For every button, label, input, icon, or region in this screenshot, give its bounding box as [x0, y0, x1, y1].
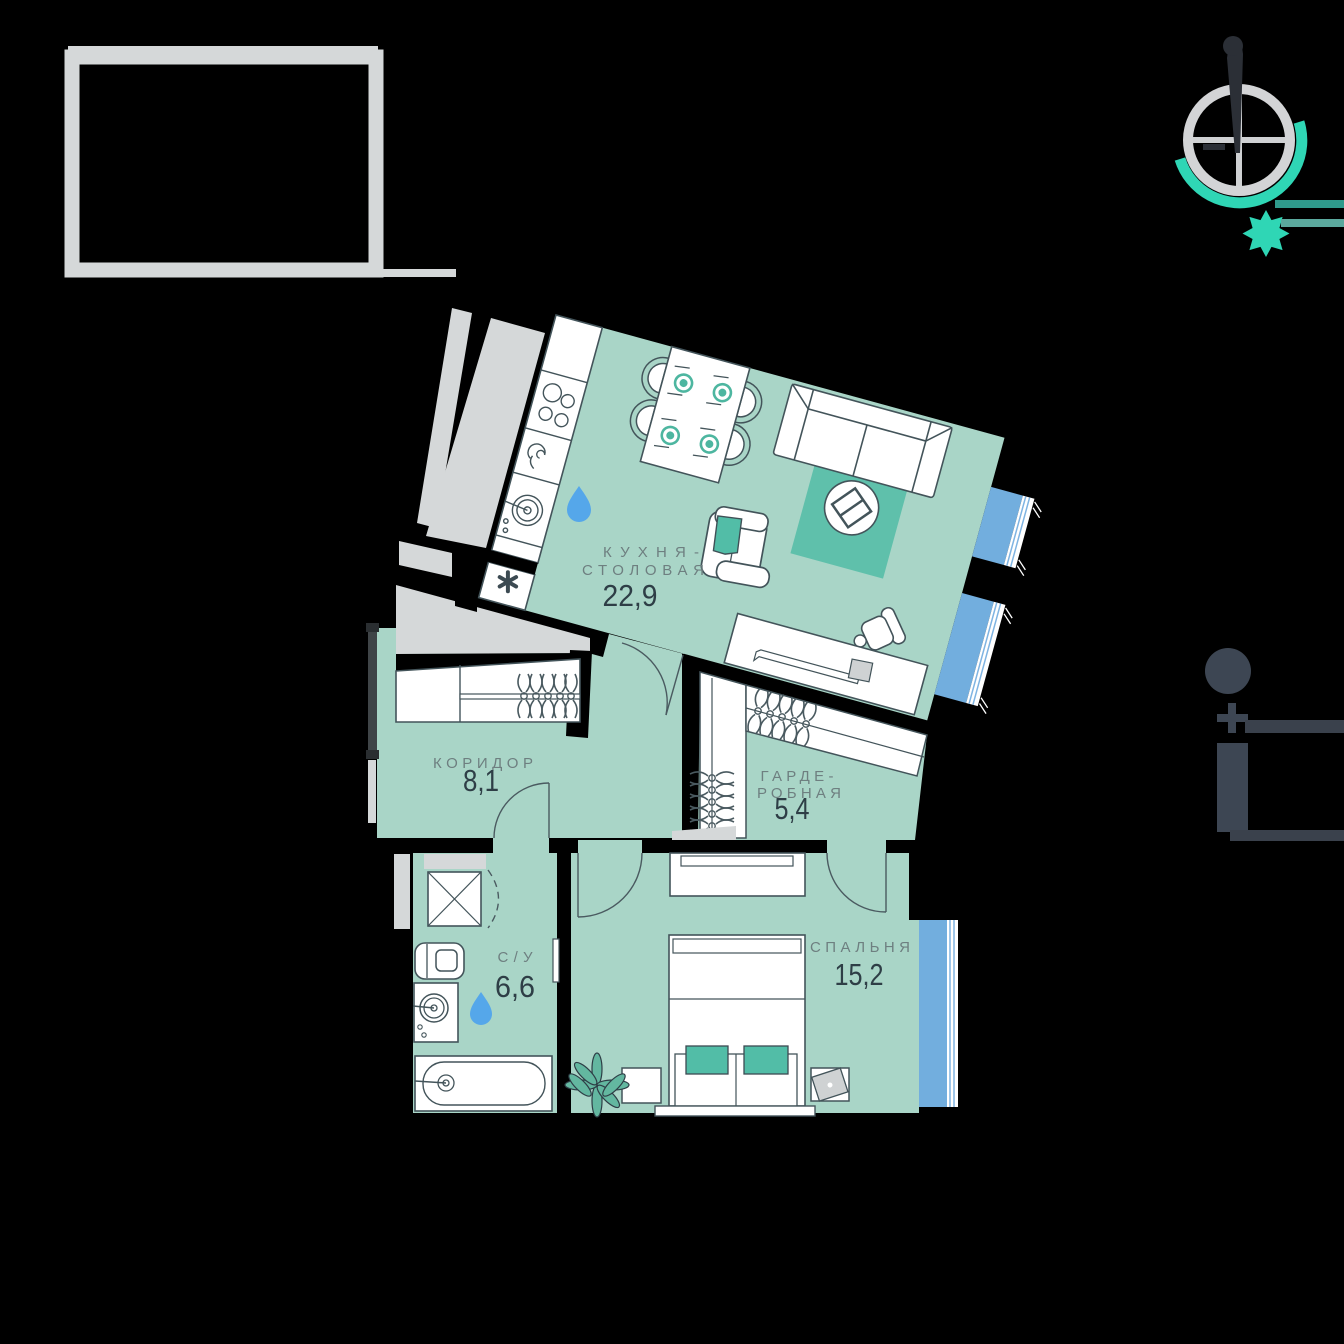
svg-text:С/У: С/У — [498, 949, 533, 966]
svg-text:6,6: 6,6 — [495, 969, 535, 1004]
svg-text:5,4: 5,4 — [775, 791, 810, 826]
svg-text:22,9: 22,9 — [603, 578, 658, 613]
svg-text:15,2: 15,2 — [835, 957, 884, 992]
svg-text:8,1: 8,1 — [463, 763, 499, 798]
